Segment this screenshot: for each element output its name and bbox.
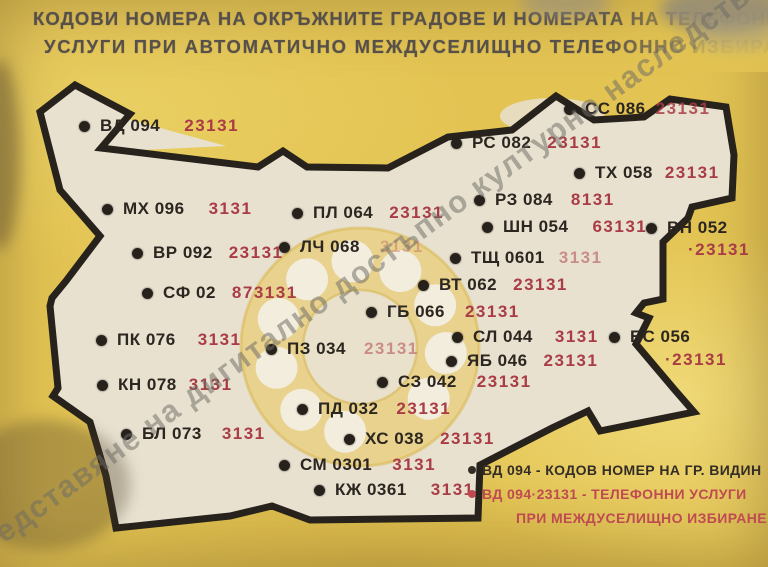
city-dot-icon	[292, 208, 303, 219]
city-service-number: 23131	[389, 203, 444, 223]
city-code-label: ХС 038	[365, 429, 424, 449]
bullet-icon	[468, 490, 476, 498]
city-dot-icon	[142, 288, 153, 299]
city-service-number: 63131	[592, 217, 647, 237]
city-service-number: 23131	[547, 133, 602, 153]
city-service-number: 3131	[380, 237, 424, 257]
city-code-label: СМ 0301	[300, 455, 372, 475]
city-service-number: 23131	[440, 429, 495, 449]
city-code-label: ВР 092	[153, 243, 213, 263]
city-entry: СС 086 23131	[564, 98, 710, 120]
city-entry: ЯБ 046 23131	[446, 350, 598, 372]
city-service-number: 3131	[189, 375, 233, 395]
city-entry: РС 082 23131	[451, 132, 602, 154]
city-code-label: ТХ 058	[595, 163, 653, 183]
city-code-label: ТЩ 0601	[471, 248, 545, 268]
city-entry: ВР 092 23131	[132, 242, 283, 264]
legend-line-3: ПРИ МЕЖДУСЕЛИЩНО ИЗБИРАНЕ	[468, 506, 767, 530]
city-service-number: 23131	[465, 302, 520, 322]
city-dot-icon	[96, 335, 107, 346]
city-entry: СФ 02 873131	[142, 282, 298, 304]
map-legend: ВД 094 - КОДОВ НОМЕР НА ГР. ВИДИН ВД 094…	[468, 458, 767, 530]
city-dot-icon	[266, 344, 277, 355]
city-code-label: СЛ 044	[473, 327, 533, 347]
city-service-number: 23131	[513, 275, 568, 295]
city-service-number: 3131	[559, 248, 603, 268]
city-entry: ВТ 062 23131	[418, 274, 568, 296]
city-entry: ШН 054 63131	[482, 216, 647, 238]
city-code-label: ЯБ 046	[467, 351, 528, 371]
city-dot-icon	[609, 332, 620, 343]
city-service-number: 3131	[555, 327, 599, 347]
city-dot-icon	[366, 307, 377, 318]
city-entry: КН 078 3131	[97, 374, 233, 396]
city-service-number: 873131	[232, 283, 298, 303]
city-entry: БЛ 073 3131	[121, 423, 266, 445]
city-entry: ПД 032 23131	[297, 398, 451, 420]
city-service-number: 23131	[656, 99, 711, 119]
city-code-label: ГБ 066	[387, 302, 445, 322]
city-dot-icon	[574, 168, 585, 179]
city-code-label: ПЛ 064	[313, 203, 373, 223]
city-code-label: ПЗ 034	[287, 339, 346, 359]
city-entry: МХ 096 3131	[102, 198, 252, 220]
bullet-icon	[468, 466, 476, 474]
city-dot-icon	[450, 253, 461, 264]
city-entry: ПК 076 3131	[96, 329, 242, 351]
city-entry: БС 056 ·23131	[609, 326, 690, 348]
city-code-label: БЛ 073	[142, 424, 202, 444]
city-dot-icon	[446, 356, 457, 367]
city-dot-icon	[452, 332, 463, 343]
legend-line-2: ВД 094·23131 - ТЕЛЕФОННИ УСЛУГИ	[468, 482, 767, 506]
city-code-label: СС 086	[585, 99, 646, 119]
city-service-number: 8131	[571, 190, 615, 210]
city-entry: ЛЧ 068 3131	[279, 236, 424, 258]
city-service-number: 23131	[477, 372, 532, 392]
title-line-2: УСЛУГИ ПРИ АВТОМАТИЧНО МЕЖДУСЕЛИЩНО ТЕЛЕ…	[44, 36, 768, 58]
city-dot-icon	[79, 121, 90, 132]
city-dot-icon	[279, 242, 290, 253]
city-code-label: ВТ 062	[439, 275, 497, 295]
legend-text: ВД 094 - КОДОВ НОМЕР НА ГР. ВИДИН	[482, 462, 762, 478]
city-dot-icon	[646, 223, 657, 234]
city-service-number: 23131	[396, 399, 451, 419]
city-dot-icon	[314, 485, 325, 496]
city-entry: ПЗ 034 23131	[266, 338, 419, 360]
city-code-label: ПК 076	[117, 330, 176, 350]
city-service-number: 3131	[392, 455, 436, 475]
city-service-number: ·23131	[688, 240, 750, 260]
city-dot-icon	[102, 204, 113, 215]
city-code-label: БС 056	[630, 327, 690, 347]
city-dot-icon	[97, 380, 108, 391]
phone-codes-card: КОДОВИ НОМЕРА НА ОКРЪЖНИТЕ ГРАДОВЕ И НОМ…	[0, 0, 768, 567]
city-service-number: 23131	[364, 339, 419, 359]
city-dot-icon	[344, 434, 355, 445]
legend-text: ПРИ МЕЖДУСЕЛИЩНО ИЗБИРАНЕ	[516, 510, 767, 526]
city-dot-icon	[482, 222, 493, 233]
city-dot-icon	[451, 138, 462, 149]
city-code-label: ВД 094	[100, 116, 160, 136]
city-entry: ВД 094 23131	[79, 115, 239, 137]
city-service-number: 23131	[665, 163, 720, 183]
city-dot-icon	[121, 429, 132, 440]
city-entry: ТХ 058 23131	[574, 162, 720, 184]
city-entry: СЗ 042 23131	[377, 371, 532, 393]
city-code-label: СЗ 042	[398, 372, 457, 392]
legend-line-1: ВД 094 - КОДОВ НОМЕР НА ГР. ВИДИН	[468, 458, 767, 482]
city-dot-icon	[474, 195, 485, 206]
city-code-label: ШН 054	[503, 217, 568, 237]
city-service-number: 23131	[184, 116, 239, 136]
city-entry: ГБ 066 23131	[366, 301, 520, 323]
city-dot-icon	[377, 377, 388, 388]
city-entry: ВН 052 ·23131	[646, 217, 728, 239]
city-dot-icon	[132, 248, 143, 259]
city-code-label: ВН 052	[667, 218, 728, 238]
city-service-number: 3131	[222, 424, 266, 444]
city-code-label: ЛЧ 068	[300, 237, 360, 257]
city-entry: ХС 038 23131	[344, 428, 495, 450]
city-entry: СЛ 044 3131	[452, 326, 599, 348]
city-service-number: 23131	[544, 351, 599, 371]
city-code-label: РЗ 084	[495, 190, 553, 210]
city-service-number: 3131	[209, 199, 253, 219]
city-service-number: 3131	[198, 330, 242, 350]
city-entry: ПЛ 064 23131	[292, 202, 444, 224]
city-code-label: МХ 096	[123, 199, 185, 219]
city-code-label: ПД 032	[318, 399, 378, 419]
city-service-number: ·23131	[665, 350, 727, 370]
city-entry: КЖ 0361 3131	[314, 479, 475, 501]
city-dot-icon	[564, 104, 575, 115]
city-code-label: РС 082	[472, 133, 531, 153]
city-entry: РЗ 084 8131	[474, 189, 615, 211]
city-entry: ТЩ 0601 3131	[450, 247, 603, 269]
legend-text: ВД 094·23131 - ТЕЛЕФОННИ УСЛУГИ	[482, 486, 747, 502]
city-code-label: СФ 02	[163, 283, 216, 303]
city-dot-icon	[279, 460, 290, 471]
city-code-label: КН 078	[118, 375, 177, 395]
city-code-label: КЖ 0361	[335, 480, 407, 500]
city-dot-icon	[418, 280, 429, 291]
title-line-1: КОДОВИ НОМЕРА НА ОКРЪЖНИТЕ ГРАДОВЕ И НОМ…	[33, 8, 768, 30]
city-service-number: 23131	[229, 243, 284, 263]
city-dot-icon	[297, 404, 308, 415]
city-entry: СМ 0301 3131	[279, 454, 436, 476]
